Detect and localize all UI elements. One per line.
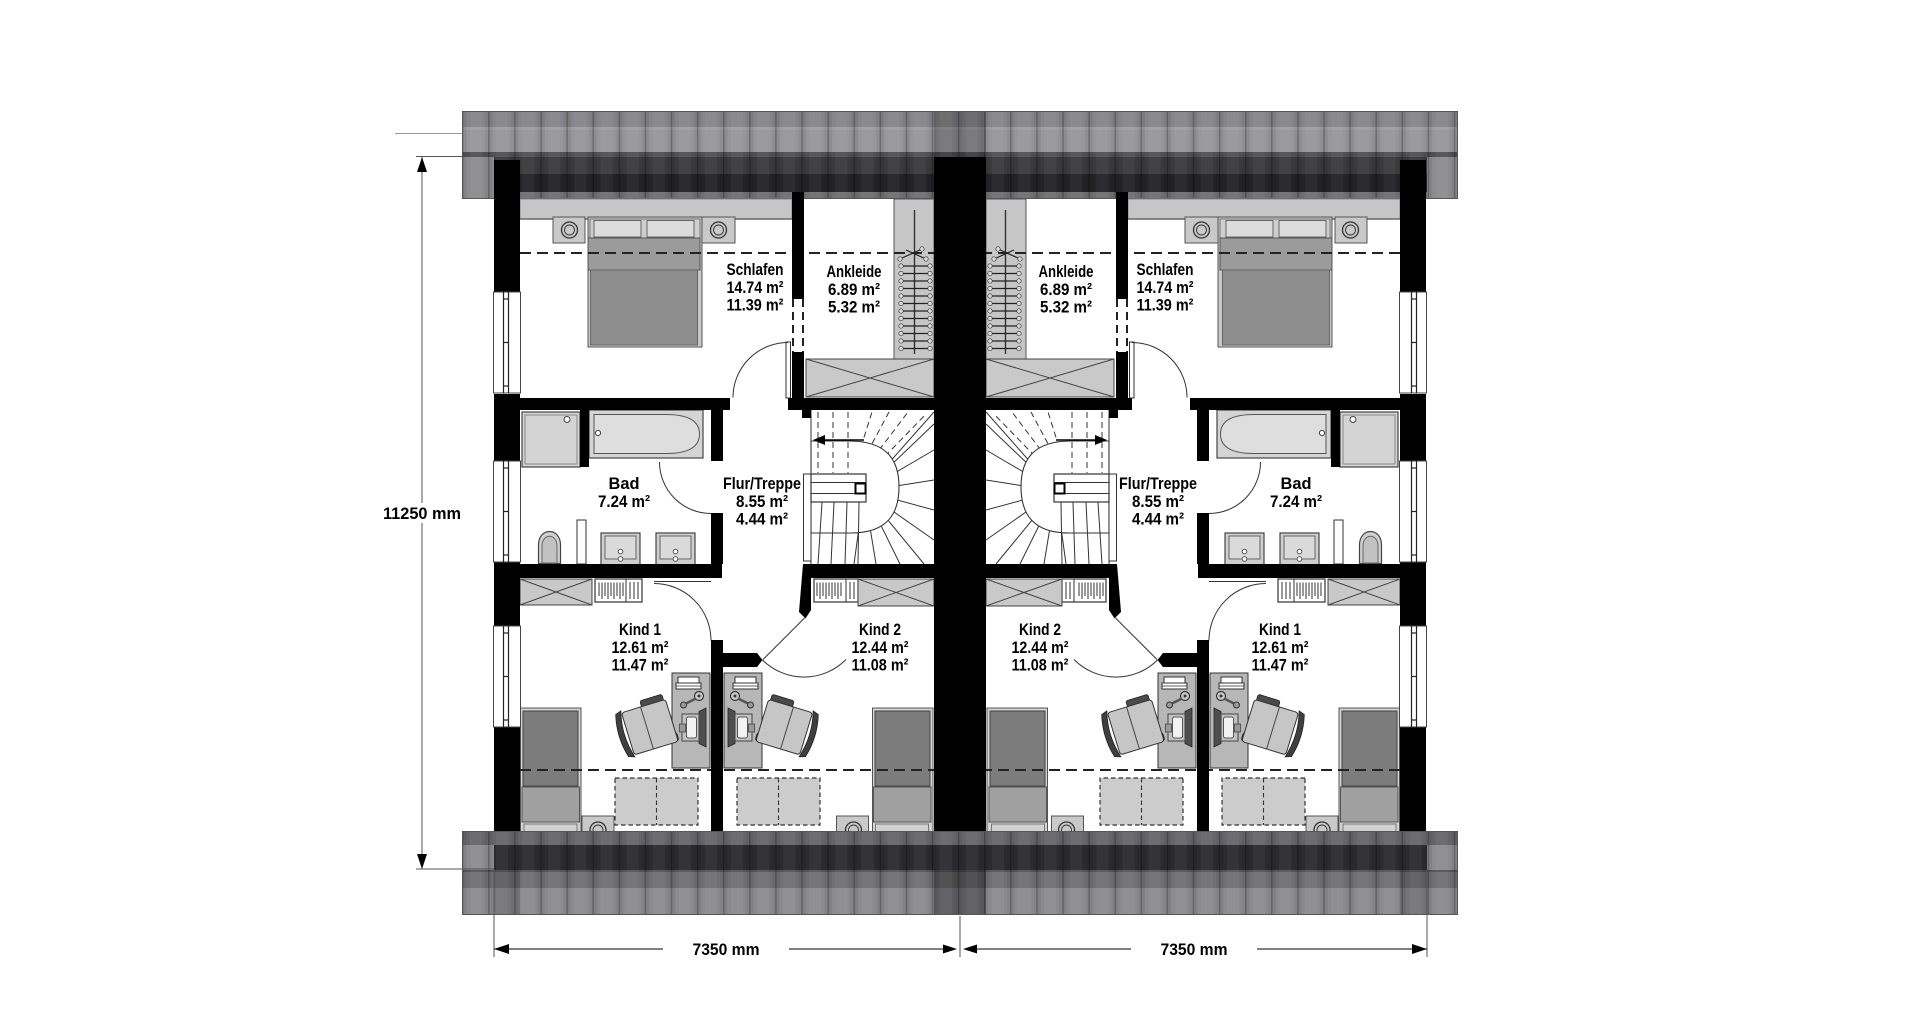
svg-text:14.74 m²: 14.74 m² bbox=[1137, 278, 1194, 297]
svg-text:Bad: Bad bbox=[1281, 474, 1312, 493]
svg-text:Kind 2: Kind 2 bbox=[1019, 620, 1061, 639]
svg-text:Flur/Treppe: Flur/Treppe bbox=[1119, 474, 1197, 493]
svg-text:8.55 m²: 8.55 m² bbox=[736, 492, 788, 511]
svg-text:11.47 m²: 11.47 m² bbox=[612, 656, 669, 675]
svg-text:Flur/Treppe: Flur/Treppe bbox=[723, 474, 801, 493]
svg-text:11.39 m²: 11.39 m² bbox=[1137, 296, 1194, 315]
svg-text:7.24 m²: 7.24 m² bbox=[1270, 492, 1322, 511]
svg-text:12.44 m²: 12.44 m² bbox=[852, 638, 909, 657]
svg-text:6.89 m²: 6.89 m² bbox=[1040, 280, 1092, 299]
svg-text:4.44 m²: 4.44 m² bbox=[736, 510, 788, 529]
svg-text:11.08 m²: 11.08 m² bbox=[852, 656, 909, 675]
svg-text:12.44 m²: 12.44 m² bbox=[1012, 638, 1069, 657]
svg-text:Schlafen: Schlafen bbox=[727, 260, 784, 279]
svg-text:Kind 2: Kind 2 bbox=[859, 620, 901, 639]
svg-text:7350 mm: 7350 mm bbox=[1161, 940, 1228, 959]
svg-text:5.32 m²: 5.32 m² bbox=[1040, 298, 1092, 317]
svg-text:Kind 1: Kind 1 bbox=[1259, 620, 1301, 639]
svg-text:12.61 m²: 12.61 m² bbox=[612, 638, 669, 657]
svg-text:5.32 m²: 5.32 m² bbox=[828, 298, 880, 317]
svg-text:6.89 m²: 6.89 m² bbox=[828, 280, 880, 299]
svg-text:11250 mm: 11250 mm bbox=[383, 504, 461, 523]
svg-text:Kind 1: Kind 1 bbox=[619, 620, 661, 639]
svg-text:11.47 m²: 11.47 m² bbox=[1252, 656, 1309, 675]
svg-text:11.39 m²: 11.39 m² bbox=[727, 296, 784, 315]
svg-text:7.24 m²: 7.24 m² bbox=[598, 492, 650, 511]
svg-text:Ankleide: Ankleide bbox=[827, 262, 882, 281]
svg-text:Schlafen: Schlafen bbox=[1137, 260, 1194, 279]
svg-text:4.44 m²: 4.44 m² bbox=[1132, 510, 1184, 529]
svg-text:12.61 m²: 12.61 m² bbox=[1252, 638, 1309, 657]
svg-text:8.55 m²: 8.55 m² bbox=[1132, 492, 1184, 511]
svg-text:14.74 m²: 14.74 m² bbox=[727, 278, 784, 297]
svg-text:Bad: Bad bbox=[609, 474, 640, 493]
svg-text:Ankleide: Ankleide bbox=[1039, 262, 1094, 281]
svg-text:7350 mm: 7350 mm bbox=[693, 940, 760, 959]
svg-text:11.08 m²: 11.08 m² bbox=[1012, 656, 1069, 675]
